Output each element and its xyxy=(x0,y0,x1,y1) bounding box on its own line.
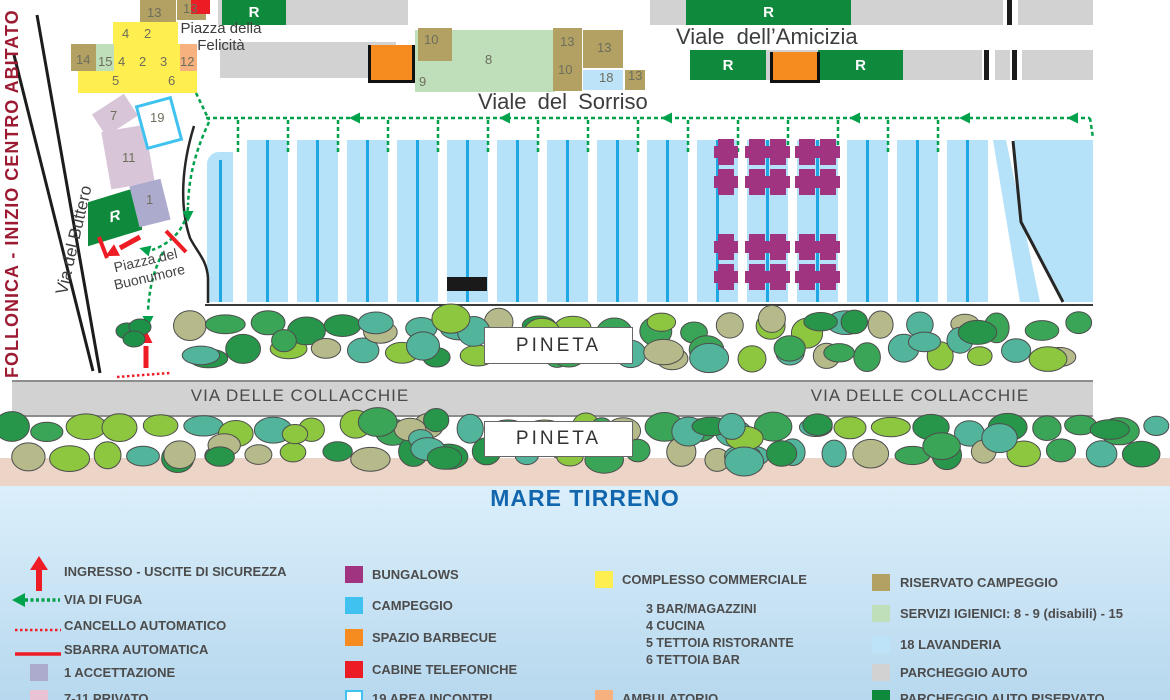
legend-label: SBARRA AUTOMATICA xyxy=(64,642,208,657)
legend-label: SPAZIO BARBECUE xyxy=(372,630,497,645)
legend-subitem: 3 BAR/MAGAZZINI xyxy=(646,601,794,618)
legend-label: AMBULATORIO xyxy=(622,691,718,700)
legend-label: PARCHEGGIO AUTO RISERVATO xyxy=(900,691,1105,700)
legend-swatch-complesso-commerciale xyxy=(595,571,613,588)
legend-swatch-1-accettazione xyxy=(30,664,48,681)
legend-label: 1 ACCETTAZIONE xyxy=(64,665,175,680)
legend-label: INGRESSO - USCITE DI SICUREZZA xyxy=(64,564,286,579)
legend-label: 18 LAVANDERIA xyxy=(900,637,1001,652)
legend-label: COMPLESSO COMMERCIALE xyxy=(622,572,807,587)
legend: INGRESSO - USCITE DI SICUREZZAVIA DI FUG… xyxy=(0,0,1170,700)
legend-label: PARCHEGGIO AUTO xyxy=(900,665,1028,680)
legend-label: SERVIZI IGIENICI: 8 - 9 (disabili) - 15 xyxy=(900,606,1123,621)
legend-swatch-ambulatorio xyxy=(595,690,613,700)
legend-subitem: 5 TETTOIA RISTORANTE xyxy=(646,635,794,652)
legend-swatch-barrier-line xyxy=(14,645,62,663)
legend-swatch-servizi-igienici-8-9-disabili-15 xyxy=(872,605,890,622)
legend-label: VIA DI FUGA xyxy=(64,592,142,607)
legend-subitem: 6 TETTOIA BAR xyxy=(646,652,794,669)
legend-swatch-gate-line xyxy=(14,621,62,639)
legend-swatch-7-11-privato xyxy=(30,690,48,700)
legend-label: BUNGALOWS xyxy=(372,567,459,582)
legend-swatch-19-area-incontri xyxy=(345,690,363,700)
legend-swatch-campeggio xyxy=(345,597,363,614)
legend-label: RISERVATO CAMPEGGIO xyxy=(900,575,1058,590)
legend-subitem: 4 CUCINA xyxy=(646,618,794,635)
legend-label: CANCELLO AUTOMATICO xyxy=(64,618,226,633)
legend-label: CAMPEGGIO xyxy=(372,598,453,613)
legend-swatch-spazio-barbecue xyxy=(345,629,363,646)
legend-swatch-18-lavanderia xyxy=(872,636,890,653)
legend-swatch-bungalows xyxy=(345,566,363,583)
legend-swatch-escape-arrow xyxy=(12,593,62,612)
legend-swatch-riservato-campeggio xyxy=(872,574,890,591)
legend-label: CABINE TELEFONICHE xyxy=(372,662,517,677)
legend-label: 19 AREA INCONTRI xyxy=(372,691,492,700)
legend-swatch-cabine-telefoniche xyxy=(345,661,363,678)
legend-sublist: 3 BAR/MAGAZZINI4 CUCINA5 TETTOIA RISTORA… xyxy=(646,601,794,669)
legend-label: 7-11 PRIVATO xyxy=(64,691,149,700)
legend-swatch-parcheggio-auto xyxy=(872,664,890,681)
legend-swatch-parcheggio-auto-riservato xyxy=(872,690,890,700)
campsite-map: RRRRR 1313421415423125671911110891310131… xyxy=(0,0,1170,700)
legend-swatch-entrance-arrow xyxy=(28,556,50,597)
